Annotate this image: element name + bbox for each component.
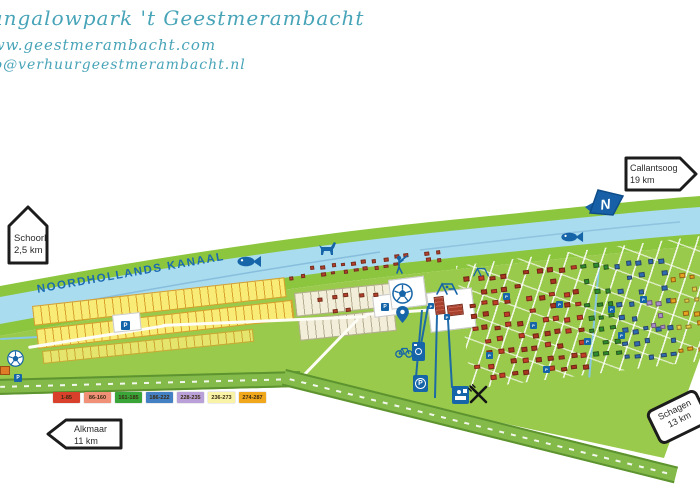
house — [622, 341, 628, 346]
house — [373, 293, 378, 298]
house — [521, 346, 528, 352]
house — [635, 261, 641, 266]
house — [646, 300, 652, 305]
house — [584, 303, 590, 308]
svg-text:Callantsoog: Callantsoog — [630, 163, 678, 173]
legend-item: 86-160 — [84, 392, 111, 403]
house — [426, 258, 431, 262]
svg-text:2,5 km: 2,5 km — [14, 245, 43, 256]
sign-alkmaar: Alkmaar 11 km — [44, 416, 124, 452]
house — [692, 286, 698, 291]
house — [594, 289, 600, 294]
legend-item: 161-185 — [115, 392, 142, 403]
house — [544, 331, 551, 337]
restaurant-icon — [468, 384, 489, 405]
compass-north-icon: N — [585, 186, 627, 218]
parking-marker: P — [428, 303, 434, 309]
house — [500, 273, 507, 279]
house — [679, 273, 685, 278]
house — [658, 259, 664, 264]
house — [689, 274, 695, 279]
house — [504, 312, 511, 318]
house — [598, 327, 604, 332]
house — [655, 301, 661, 306]
house — [694, 297, 700, 302]
house — [522, 269, 529, 275]
house — [535, 357, 542, 363]
house — [644, 338, 650, 343]
bicycle-icon — [395, 345, 413, 358]
house — [570, 364, 577, 370]
house — [651, 323, 657, 328]
svg-text:11 km: 11 km — [74, 436, 98, 446]
house — [635, 354, 641, 359]
parking-marker: P — [608, 306, 615, 313]
house — [564, 292, 571, 298]
dog-icon — [316, 240, 338, 257]
house — [490, 276, 497, 282]
house — [684, 298, 690, 303]
house — [493, 300, 500, 306]
playground-icon — [473, 266, 489, 277]
house — [581, 353, 588, 359]
house — [589, 328, 595, 333]
house — [573, 289, 580, 295]
house — [321, 272, 326, 276]
house — [485, 338, 492, 344]
reception-icon — [452, 386, 469, 404]
house — [482, 300, 489, 306]
house-zone — [644, 298, 668, 334]
parking-marker: P — [618, 332, 625, 339]
house — [518, 333, 525, 339]
house — [564, 302, 571, 308]
house — [469, 303, 476, 309]
house — [571, 353, 578, 359]
house — [589, 316, 595, 321]
house — [363, 266, 368, 270]
house — [616, 302, 622, 307]
house — [491, 288, 498, 294]
house — [480, 289, 487, 295]
house — [660, 324, 666, 329]
house — [619, 315, 625, 320]
parking-sign-icon: P — [413, 375, 428, 392]
house — [661, 353, 667, 358]
house — [512, 371, 519, 377]
house — [300, 274, 305, 278]
house-zone — [462, 262, 593, 388]
laundry-icon — [412, 342, 425, 361]
soccer-ball-icon — [392, 283, 413, 304]
house — [508, 347, 515, 353]
map-marker-box — [0, 366, 10, 375]
house — [559, 268, 566, 274]
house — [603, 351, 609, 356]
house — [557, 343, 564, 349]
house — [564, 317, 571, 323]
house — [361, 259, 366, 263]
house — [678, 348, 684, 353]
house — [330, 271, 335, 275]
house — [614, 264, 620, 269]
parking-marker: P — [556, 301, 563, 308]
house — [546, 267, 553, 273]
house — [523, 358, 530, 364]
house — [354, 268, 359, 272]
angler-icon — [394, 255, 409, 275]
parking-marker: P — [486, 352, 493, 359]
house — [494, 325, 501, 331]
house — [529, 308, 536, 314]
house — [559, 355, 566, 361]
house — [359, 293, 364, 298]
house — [331, 263, 336, 267]
house-zone — [298, 287, 386, 342]
house — [629, 301, 635, 306]
house — [471, 314, 478, 320]
map-pin-icon — [396, 306, 409, 323]
house — [542, 317, 549, 323]
house — [333, 309, 338, 314]
legend-item: 228-235 — [177, 392, 204, 403]
legend-item: 1-85 — [53, 392, 80, 403]
house — [639, 272, 645, 277]
house — [384, 264, 389, 268]
house — [597, 302, 603, 307]
park-map: Bungalowpark 't Geestmerambacht www.gees… — [0, 0, 700, 500]
house — [683, 311, 689, 316]
parking-marker: P — [503, 293, 510, 300]
house — [533, 333, 540, 339]
house — [633, 329, 639, 334]
house — [638, 289, 644, 294]
house — [593, 352, 599, 357]
house — [549, 291, 556, 297]
parking-marker: P — [381, 303, 389, 311]
house — [526, 296, 533, 302]
fish-icon — [236, 254, 262, 269]
house — [552, 316, 559, 322]
house — [648, 355, 654, 360]
house — [670, 298, 676, 303]
soccer-ball-icon — [7, 350, 24, 367]
legend-item: 236-273 — [208, 392, 235, 403]
house — [515, 283, 522, 289]
house — [384, 258, 389, 262]
house — [550, 279, 557, 285]
house — [561, 366, 568, 372]
house — [332, 295, 337, 300]
house — [343, 270, 348, 274]
house — [687, 346, 693, 351]
house — [648, 259, 654, 264]
house — [424, 252, 429, 256]
house — [626, 260, 632, 265]
house — [685, 324, 691, 329]
house — [498, 349, 505, 355]
house — [320, 265, 325, 269]
house — [610, 325, 616, 330]
house — [676, 325, 682, 330]
parking-marker: P — [14, 374, 22, 382]
house — [472, 326, 479, 332]
house — [345, 308, 350, 313]
house — [500, 373, 507, 379]
house — [603, 264, 609, 269]
house — [501, 286, 508, 292]
house — [505, 321, 512, 327]
house — [605, 288, 611, 293]
house — [694, 311, 700, 316]
parking-marker: P — [640, 296, 647, 303]
house — [488, 364, 495, 370]
plot-number-legend: 1-8586-160161-185186-222228-235236-27327… — [53, 392, 266, 403]
house — [483, 311, 490, 317]
parking-marker: P — [530, 322, 537, 329]
house — [539, 295, 546, 301]
house — [474, 364, 481, 370]
svg-text:Schoorl: Schoorl — [14, 233, 46, 244]
house — [634, 341, 640, 346]
house — [374, 266, 379, 270]
house — [351, 262, 356, 266]
house — [575, 301, 582, 307]
house — [481, 324, 488, 330]
house — [371, 259, 376, 263]
house — [626, 275, 632, 280]
svg-text:19 km: 19 km — [630, 175, 655, 185]
parking-marker: P — [584, 338, 591, 345]
parking-marker: P — [121, 321, 130, 330]
legend-item: 274-287 — [239, 392, 266, 403]
parking-marker: P — [543, 366, 550, 373]
house — [554, 329, 561, 335]
playground-icon — [436, 281, 458, 295]
sign-callantsoog: Callantsoog 19 km — [623, 152, 699, 196]
house — [578, 327, 585, 333]
house — [310, 266, 315, 270]
house — [657, 313, 663, 318]
building — [434, 296, 446, 315]
house — [547, 356, 554, 362]
house — [437, 258, 442, 262]
house — [624, 354, 630, 359]
house — [670, 277, 676, 282]
house — [570, 265, 577, 271]
legend-item: 186-222 — [146, 392, 173, 403]
house — [583, 364, 590, 370]
house — [577, 315, 584, 321]
fish-icon — [560, 230, 584, 244]
house — [490, 375, 497, 381]
house — [531, 345, 538, 351]
house — [464, 276, 471, 282]
sign-schoorl: Schoorl 2,5 km — [6, 204, 50, 266]
house — [510, 358, 517, 364]
house — [608, 313, 614, 318]
house — [580, 264, 586, 269]
house — [340, 262, 345, 266]
svg-text:Alkmaar: Alkmaar — [74, 424, 107, 434]
house — [566, 328, 573, 334]
house — [536, 268, 543, 274]
house — [523, 369, 530, 375]
house — [603, 339, 609, 344]
house — [343, 292, 348, 297]
house — [593, 263, 599, 268]
house — [517, 321, 524, 327]
house — [544, 342, 551, 348]
house — [289, 276, 294, 280]
house — [496, 336, 503, 342]
house — [598, 315, 604, 320]
house — [317, 297, 322, 302]
house — [617, 289, 623, 294]
house — [436, 250, 441, 254]
house — [584, 279, 590, 284]
house — [632, 316, 638, 321]
